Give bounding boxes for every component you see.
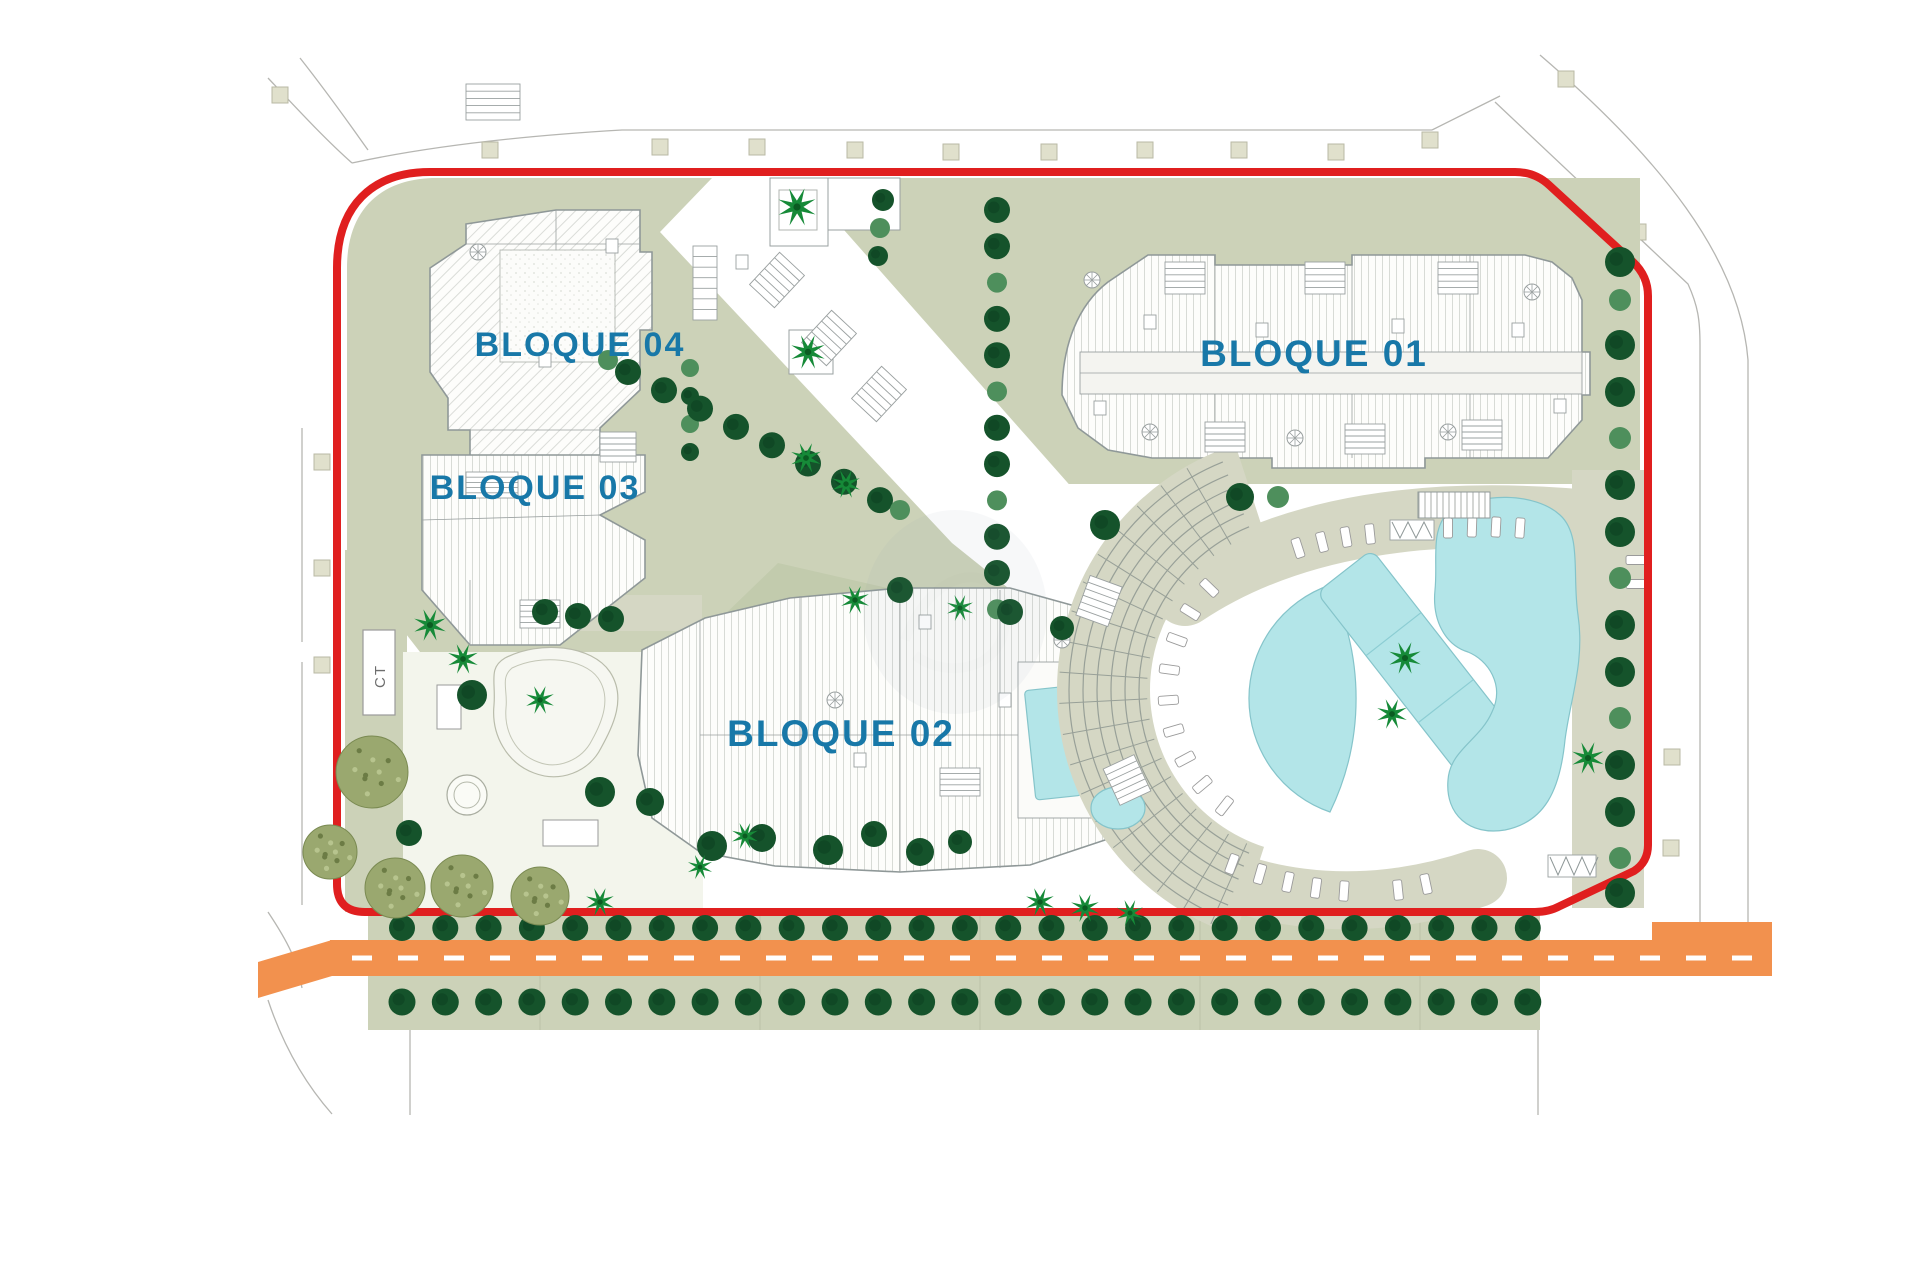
pool-bridge [1418,492,1490,518]
label-bloque-01: BLOQUE 01 [1200,333,1428,374]
garden-shed [543,820,598,846]
site-plan-page: CT [0,0,1920,1280]
pool-area [1057,445,1646,936]
label-bloque-04: BLOQUE 04 [475,326,686,364]
ct-label: CT [372,664,389,688]
label-bloque-02: BLOQUE 02 [727,713,955,754]
watermark [863,510,1047,714]
site-plan-drawing: CT [0,0,1920,1280]
label-bloque-03: BLOQUE 03 [430,469,641,507]
fountain [447,775,487,815]
